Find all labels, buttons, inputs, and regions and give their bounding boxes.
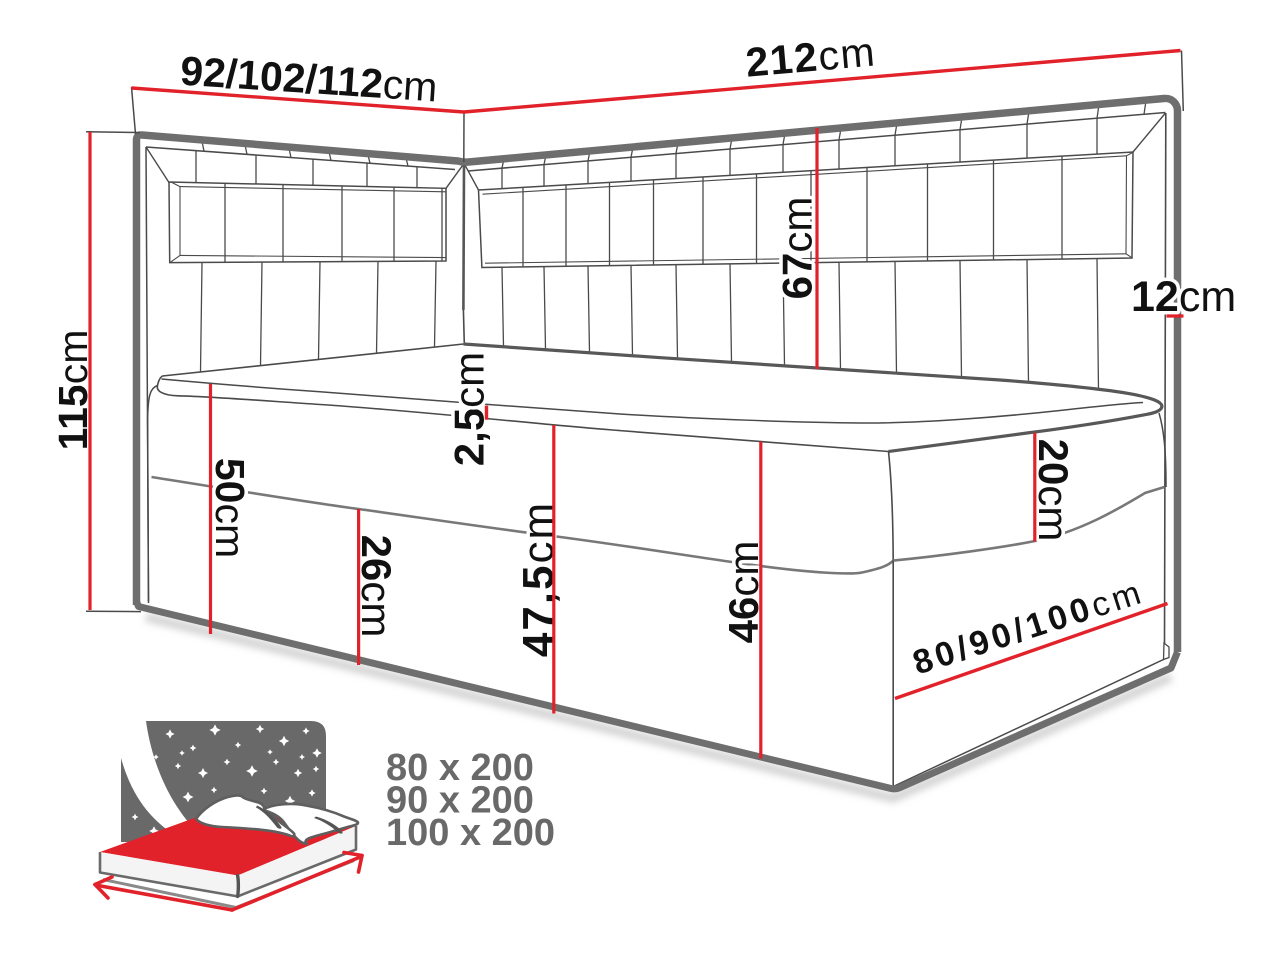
svg-text:100 x 200: 100 x 200 xyxy=(386,812,555,854)
svg-text:12cm: 12cm xyxy=(1131,273,1236,321)
svg-text:67cm: 67cm xyxy=(774,197,821,300)
svg-text:50cm: 50cm xyxy=(207,458,253,558)
svg-text:20cm: 20cm xyxy=(1030,439,1077,542)
svg-text:47,5cm: 47,5cm xyxy=(514,501,563,657)
